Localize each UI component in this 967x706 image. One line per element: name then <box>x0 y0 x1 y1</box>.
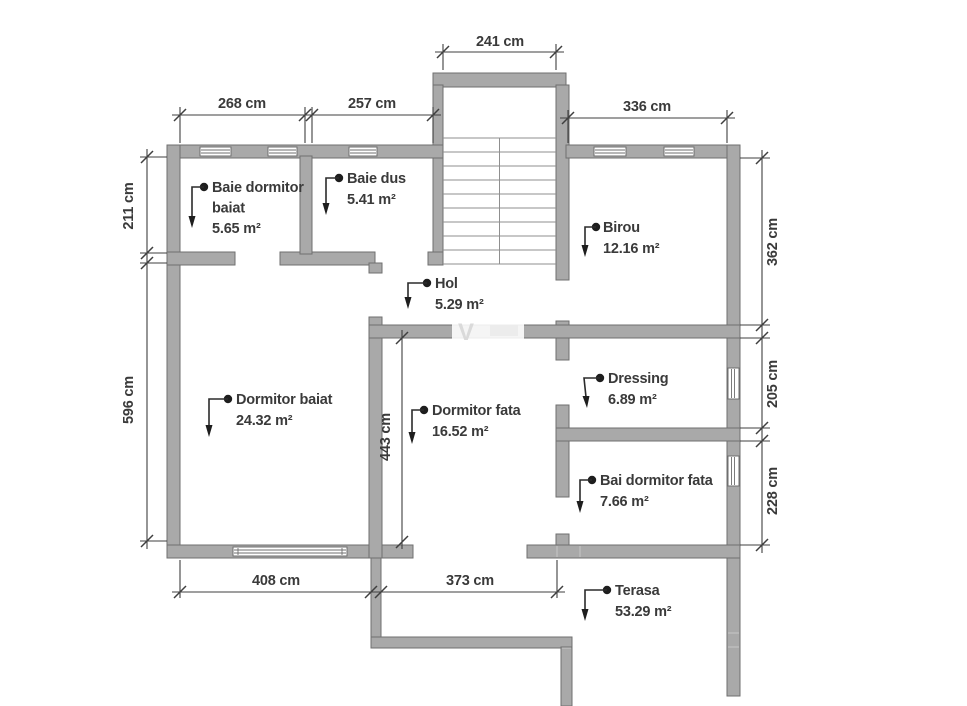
label-arrow-icon <box>582 245 589 257</box>
window-dormitor-baiat <box>233 547 347 556</box>
wall-mid-seg3 <box>556 405 569 497</box>
room-name: Bai dormitor fata <box>600 473 714 489</box>
label-arrow-icon <box>582 609 589 621</box>
room-name: baiat <box>212 201 245 217</box>
label-arrow-icon <box>583 396 590 408</box>
dimension-label-dressing-height: 205 cm <box>765 360 781 408</box>
room-name: Baie dus <box>347 171 406 187</box>
wall-terrace-right <box>727 558 740 696</box>
dim-left-heights: 211 cm 596 cm <box>121 149 167 549</box>
staircase <box>443 138 556 264</box>
room-area: 5.41 m² <box>347 192 396 208</box>
dim-right-heights: 362 cm 205 cm 228 cm <box>740 150 781 553</box>
window-dressing <box>728 368 739 399</box>
room-name: Hol <box>435 276 458 292</box>
dimension-label-dormitor-fata-width: 373 cm <box>446 573 494 589</box>
watermark-block <box>490 325 518 336</box>
room-area: 5.29 m² <box>435 297 484 313</box>
dimension-label-baie-dormitor-width: 268 cm <box>218 96 266 112</box>
dimension-label-dormitor-baiat-height: 596 cm <box>121 376 137 424</box>
room-area: 7.66 m² <box>600 494 649 510</box>
room-label-baie-dus: Baie dus 5.41 m² <box>323 171 406 215</box>
wall-terrace-horizontal <box>371 637 572 648</box>
wall-terrace-left-lower <box>561 647 572 706</box>
wall-bath-bottom-seg3 <box>428 252 443 265</box>
dim-birou-width: 336 cm <box>560 99 735 143</box>
room-label-hol: Hol 5.29 m² <box>405 276 484 313</box>
room-name: Dormitor fata <box>432 403 522 419</box>
dim-bottom-widths: 408 cm 373 cm <box>172 560 565 598</box>
window-birou-2 <box>664 147 694 156</box>
dim-stairwell-width: 241 cm <box>435 34 564 70</box>
room-area: 53.29 m² <box>615 604 672 620</box>
dim-baths-widths: 268 cm 257 cm <box>172 96 441 143</box>
label-arrow-icon <box>323 203 330 215</box>
room-name: Terasa <box>615 583 661 599</box>
room-label-birou: Birou 12.16 m² <box>582 220 660 257</box>
window-baie-dormitor-2 <box>268 147 297 156</box>
window-baie-dormitor-1 <box>200 147 231 156</box>
room-label-terasa: Terasa 53.29 m² <box>582 583 672 621</box>
window-baie-dus <box>349 147 377 156</box>
watermark: V <box>452 319 524 346</box>
room-area: 24.32 m² <box>236 413 293 429</box>
label-arrow-icon <box>409 432 416 444</box>
dimension-label-birou-width: 336 cm <box>623 99 671 115</box>
room-area: 5.65 m² <box>212 221 261 237</box>
label-arrow-icon <box>206 425 213 437</box>
floor-plan-page: 241 cm 268 cm 257 cm 336 cm 211 cm 596 c… <box>0 0 967 706</box>
dimension-label-bai-fata-height: 228 cm <box>765 467 781 515</box>
dimension-label-baie-dus-width: 257 cm <box>348 96 396 112</box>
room-area: 6.89 m² <box>608 392 657 408</box>
wall-mid-seg1 <box>556 85 569 280</box>
room-label-dormitor-fata: Dormitor fata 16.52 m² <box>409 403 522 444</box>
wall-dressing-bai-divider <box>556 428 740 441</box>
wall-right <box>727 145 740 558</box>
floor-plan-drawing: 241 cm 268 cm 257 cm 336 cm 211 cm 596 c… <box>0 0 967 706</box>
dimension-label-dormitor-baiat-width: 408 cm <box>252 573 300 589</box>
room-name: Birou <box>603 220 640 236</box>
dimension-label-baie-height: 211 cm <box>121 182 137 229</box>
wall-hol-bottom <box>369 325 740 338</box>
wall-terrace-left-upper <box>371 558 381 648</box>
label-arrow-icon <box>577 501 584 513</box>
wall-left <box>167 145 180 558</box>
window-bai-dormitor-fata <box>728 456 739 486</box>
label-arrow-icon <box>405 297 412 309</box>
room-label-dormitor-baiat: Dormitor baiat 24.32 m² <box>206 392 333 437</box>
room-area: 12.16 m² <box>603 241 660 257</box>
wall-stairwell-left <box>433 85 443 265</box>
dimension-lines: 241 cm 268 cm 257 cm 336 cm 211 cm 596 c… <box>121 34 781 598</box>
wall-bedroom-divider-seg1 <box>369 263 382 273</box>
room-label-dressing: Dressing 6.89 m² <box>583 371 669 408</box>
room-label-baie-dormitor-baiat: Baie dormitor baiat 5.65 m² <box>189 180 305 237</box>
room-name: Baie dormitor <box>212 180 304 196</box>
room-label-bai-dormitor-fata: Bai dormitor fata 7.66 m² <box>577 473 714 513</box>
room-name: Dormitor baiat <box>236 392 333 408</box>
dimension-label-birou-height: 362 cm <box>765 218 781 266</box>
wall-bath-bottom-seg2 <box>280 252 375 265</box>
room-area: 16.52 m² <box>432 424 489 440</box>
label-arrow-icon <box>189 216 196 228</box>
watermark-glyph: V <box>458 319 474 346</box>
window-birou-1 <box>594 147 626 156</box>
wall-top-right <box>566 145 740 158</box>
dimension-label-stairwell-width: 241 cm <box>476 34 524 50</box>
wall-bath-bottom-seg1 <box>167 252 235 265</box>
wall-stairwell-top <box>433 73 566 87</box>
room-name: Dressing <box>608 371 668 387</box>
wall-bath-divider <box>300 156 312 254</box>
wall-bottom-seg2 <box>527 545 740 558</box>
dimension-label-dormitor-fata-height: 443 cm <box>378 413 394 461</box>
